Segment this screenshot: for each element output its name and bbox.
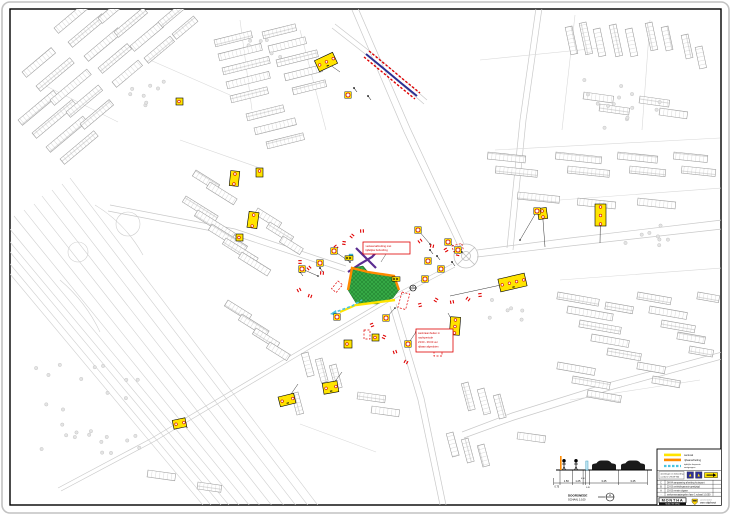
svg-text:verkeersafzetting met: verkeersafzetting met: [366, 244, 392, 248]
tree: [145, 101, 148, 104]
leader-dot: [317, 275, 319, 277]
roundel-sign: [332, 249, 336, 253]
roundel-sign: [346, 93, 350, 97]
sign-glyph: [252, 214, 255, 217]
sign-board: [247, 211, 259, 228]
tree: [93, 365, 96, 368]
sign-board: [322, 381, 339, 394]
tree: [129, 92, 132, 95]
tree: [658, 100, 661, 103]
tree: [488, 316, 491, 319]
roundel-sign: [426, 259, 430, 263]
tree: [105, 435, 108, 438]
tree: [130, 87, 133, 90]
tree: [270, 52, 273, 55]
tree: [61, 408, 64, 411]
roundel-sign: [446, 240, 450, 244]
tree: [603, 126, 606, 129]
red-tick: [298, 263, 301, 264]
svg-text:rijbaanafzetting: rijbaanafzetting: [684, 459, 702, 462]
roundel-sign: [535, 209, 539, 213]
tree: [124, 396, 127, 399]
sign-board: [372, 334, 379, 341]
roundel-sign: [423, 277, 427, 281]
tree: [624, 241, 627, 244]
tree: [606, 104, 609, 107]
svg-text:0.75: 0.75: [554, 486, 559, 489]
sign-glyph: [454, 319, 457, 322]
sign-glyph: [599, 206, 602, 209]
sign-glyph: [334, 385, 337, 388]
tree: [265, 38, 268, 41]
tree: [80, 377, 83, 380]
tree: [248, 39, 251, 42]
tree: [658, 243, 661, 246]
arrow-board-face: [392, 277, 400, 281]
title-block: werkvak rijbaanafzetting tijdelijke loop…: [657, 449, 722, 506]
arrow-board-face: [345, 256, 353, 260]
svg-text:23:00 - 06:00 uur: 23:00 - 06:00 uur: [418, 340, 438, 344]
sign-glyph: [291, 397, 294, 400]
sign-board: [595, 204, 606, 226]
svg-text:0.45: 0.45: [586, 487, 590, 489]
leader-dot: [349, 261, 351, 263]
sign-glyph: [522, 278, 525, 281]
sign-glyph: [234, 173, 237, 176]
tree: [631, 106, 634, 109]
tree: [520, 318, 523, 321]
tree: [619, 84, 622, 87]
sign-glyph: [599, 223, 602, 226]
legend-swatch-workzone: [664, 454, 681, 457]
tree: [640, 233, 643, 236]
svg-text:werkzaamheden in: werkzaamheden in: [418, 331, 440, 335]
tree: [87, 433, 90, 436]
sign-glyph: [508, 282, 511, 285]
svg-text:nachtperiode: nachtperiode: [418, 335, 434, 339]
tree: [45, 403, 48, 406]
svg-text:0.30: 0.30: [581, 478, 585, 480]
montha-logo: MONTHA MOBILITEIT INFRA: [659, 498, 686, 506]
svg-text:tijdelijke bebording: tijdelijke bebording: [366, 248, 389, 252]
tree: [656, 235, 659, 238]
tree: [40, 447, 43, 450]
arrow-board: [392, 277, 400, 281]
traffic-plan-drawing: A verkeersafzetting met tijdelijke bebor…: [0, 0, 731, 516]
svg-text:MONTHA: MONTHA: [662, 498, 684, 503]
tree: [100, 451, 103, 454]
svg-text:rijbaan afgesloten: rijbaan afgesloten: [418, 344, 439, 348]
roundel-sign: [456, 248, 460, 252]
sign-glyph: [178, 100, 181, 103]
sign-glyph: [238, 236, 241, 239]
red-tick: [298, 260, 301, 261]
svg-text:van stiphout: van stiphout: [700, 501, 716, 505]
tree: [278, 55, 281, 58]
tree: [596, 102, 599, 105]
tree: [125, 378, 128, 381]
tree: [101, 364, 104, 367]
sign-glyph: [232, 183, 235, 186]
sign-glyph: [325, 387, 328, 390]
sign-glyph: [175, 423, 178, 426]
tree: [142, 94, 145, 97]
sign-glyph: [542, 215, 545, 218]
tree: [586, 93, 589, 96]
arrow-board: [345, 256, 353, 260]
svg-text:22-03 omleidingsroute gewijzi: 22-03 omleidingsroute gewijzigd: [667, 485, 701, 488]
tree: [247, 44, 250, 47]
tree: [58, 363, 61, 366]
svg-text:15-03 eerste uitgave: 15-03 eerste uitgave: [667, 489, 689, 492]
roundel-sign: [439, 267, 443, 271]
section-title: DOORSNEDE: [568, 494, 587, 498]
tree: [655, 108, 658, 111]
red-tick: [360, 229, 361, 232]
tree: [126, 439, 129, 442]
legend-swatch-closure: [664, 459, 681, 462]
note-callout-night: werkzaamheden in nachtperiode 23:00 - 06…: [416, 329, 453, 352]
sign-board: [236, 234, 243, 241]
tree: [617, 96, 620, 99]
tree: [612, 102, 615, 105]
sign-board: [176, 98, 183, 105]
tree: [490, 298, 493, 301]
tree: [626, 116, 629, 119]
sign-board: [256, 168, 263, 177]
tree: [100, 440, 103, 443]
tree: [583, 78, 586, 81]
section-scale: SCHAAL 1:100: [568, 498, 586, 502]
tree: [134, 434, 137, 437]
svg-text:3.45: 3.45: [601, 479, 607, 483]
svg-text:1.50: 1.50: [564, 479, 570, 483]
tree: [73, 435, 76, 438]
sign-glyph: [541, 210, 544, 213]
tree: [89, 430, 92, 433]
leader-dot: [519, 239, 521, 241]
tree: [162, 80, 165, 83]
tree: [138, 446, 141, 449]
svg-text:verkeersmaatregelen fase 1 s: verkeersmaatregelen fase 1 schaal 1:1000: [667, 493, 711, 496]
sign-glyph: [258, 170, 261, 173]
tree: [658, 238, 661, 241]
tree: [156, 87, 159, 90]
sign-glyph: [515, 280, 518, 283]
tree: [136, 378, 139, 381]
leader-dot: [461, 251, 463, 253]
sign-glyph: [454, 325, 457, 328]
sign-board: [344, 340, 352, 348]
tree: [109, 451, 112, 454]
sign-glyph: [182, 421, 185, 424]
svg-text:A: A: [609, 493, 611, 497]
roundel-sign: [416, 228, 420, 232]
svg-text:voetgangers: voetgangers: [684, 466, 695, 469]
tree: [648, 231, 651, 234]
tree: [47, 373, 50, 376]
svg-text:tijdelijke looproute: tijdelijke looproute: [684, 463, 701, 466]
drawing-sheet: A verkeersafzetting met tijdelijke bebor…: [0, 0, 731, 516]
sign-glyph: [453, 332, 456, 335]
svg-text:afzettingen en bebording: afzettingen en bebording: [661, 473, 685, 476]
tree: [630, 92, 633, 95]
svg-text:conform CROW 96b: conform CROW 96b: [661, 476, 681, 479]
sign-glyph: [374, 336, 377, 339]
tree: [106, 391, 109, 394]
sign-board: [229, 171, 240, 187]
svg-text:08-04 aanpassing afzetting kr: 08-04 aanpassing afzetting kruispunt: [667, 481, 705, 484]
sign-glyph: [599, 214, 602, 217]
tree: [34, 366, 37, 369]
sign-glyph: [501, 283, 504, 286]
roundel-sign: [300, 267, 304, 271]
red-tick: [363, 229, 364, 232]
tree: [259, 39, 262, 42]
roundel-sign: [335, 315, 339, 319]
tree: [75, 431, 78, 434]
svg-text:3.45: 3.45: [630, 479, 636, 483]
tree: [64, 434, 67, 437]
roundel-sign: [384, 316, 388, 320]
leader-dot: [394, 307, 396, 309]
roundel-sign: [406, 342, 410, 346]
tree: [521, 309, 524, 312]
tree: [509, 307, 512, 310]
tree: [506, 309, 509, 312]
sign-glyph: [281, 400, 284, 403]
tree: [61, 423, 64, 426]
tree: [666, 238, 669, 241]
sign-glyph: [251, 224, 254, 227]
tree: [659, 224, 662, 227]
section-barrier-blue: [586, 461, 588, 470]
roundel-sign: [318, 261, 322, 265]
tree: [148, 84, 151, 87]
sign-glyph: [346, 343, 349, 346]
svg-text:werkvak: werkvak: [684, 454, 694, 457]
